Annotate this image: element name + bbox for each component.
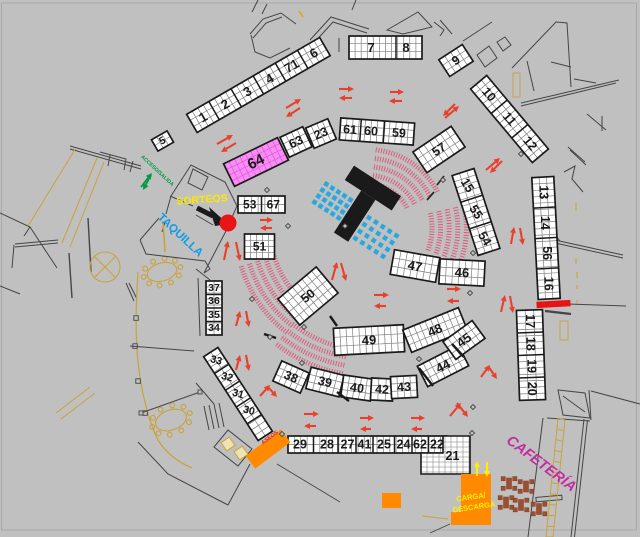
svg-text:59: 59 bbox=[392, 126, 407, 141]
svg-text:14: 14 bbox=[538, 216, 552, 230]
svg-text:41: 41 bbox=[358, 438, 372, 452]
svg-text:25: 25 bbox=[377, 438, 391, 452]
svg-text:35: 35 bbox=[208, 309, 220, 321]
svg-text:56: 56 bbox=[540, 246, 554, 260]
svg-text:51: 51 bbox=[253, 240, 267, 254]
svg-text:40: 40 bbox=[349, 380, 365, 396]
svg-text:49: 49 bbox=[361, 332, 376, 348]
svg-text:47: 47 bbox=[407, 257, 424, 274]
svg-text:16: 16 bbox=[541, 277, 555, 291]
svg-text:24: 24 bbox=[397, 438, 411, 452]
svg-text:18: 18 bbox=[524, 337, 538, 351]
svg-text:67: 67 bbox=[267, 198, 281, 212]
svg-text:61: 61 bbox=[343, 122, 358, 137]
svg-text:34: 34 bbox=[208, 322, 220, 334]
svg-text:46: 46 bbox=[454, 265, 469, 281]
svg-text:27: 27 bbox=[341, 438, 355, 452]
svg-text:29: 29 bbox=[293, 438, 307, 452]
svg-text:20: 20 bbox=[525, 382, 539, 396]
svg-text:19: 19 bbox=[524, 359, 538, 373]
svg-text:8: 8 bbox=[402, 40, 409, 55]
svg-text:7: 7 bbox=[367, 40, 374, 55]
svg-text:22: 22 bbox=[430, 438, 444, 452]
svg-text:36: 36 bbox=[208, 295, 220, 307]
svg-text:53: 53 bbox=[243, 198, 257, 212]
svg-text:62: 62 bbox=[413, 438, 427, 452]
svg-text:43: 43 bbox=[397, 380, 412, 395]
svg-text:42: 42 bbox=[375, 382, 390, 397]
svg-text:37: 37 bbox=[208, 282, 220, 294]
svg-text:13: 13 bbox=[537, 185, 551, 199]
svg-text:60: 60 bbox=[364, 124, 379, 139]
svg-text:21: 21 bbox=[446, 449, 460, 463]
svg-text:28: 28 bbox=[320, 438, 334, 452]
svg-text:17: 17 bbox=[523, 314, 537, 328]
